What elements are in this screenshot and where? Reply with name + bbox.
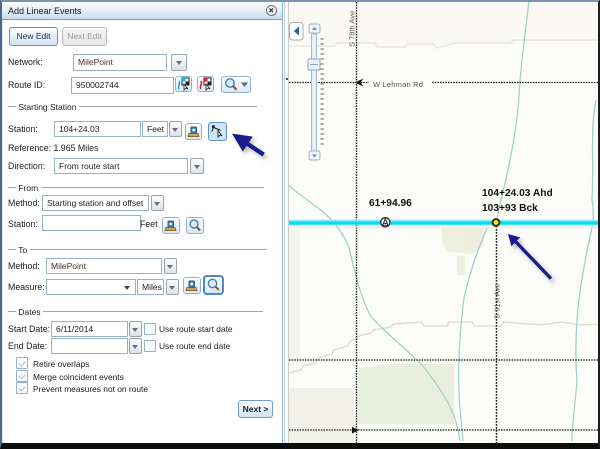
svg-text:61+94.96: 61+94.96 — [369, 198, 412, 209]
svg-text:S 78th Ave: S 78th Ave — [348, 11, 357, 47]
svg-text:104+24.03 Ahd: 104+24.03 Ahd — [482, 188, 553, 199]
svg-text:103+93 Bck: 103+93 Bck — [482, 203, 538, 214]
svg-text:S 91st Ave: S 91st Ave — [493, 283, 502, 319]
svg-text:W Lehman Rd: W Lehman Rd — [373, 80, 423, 89]
